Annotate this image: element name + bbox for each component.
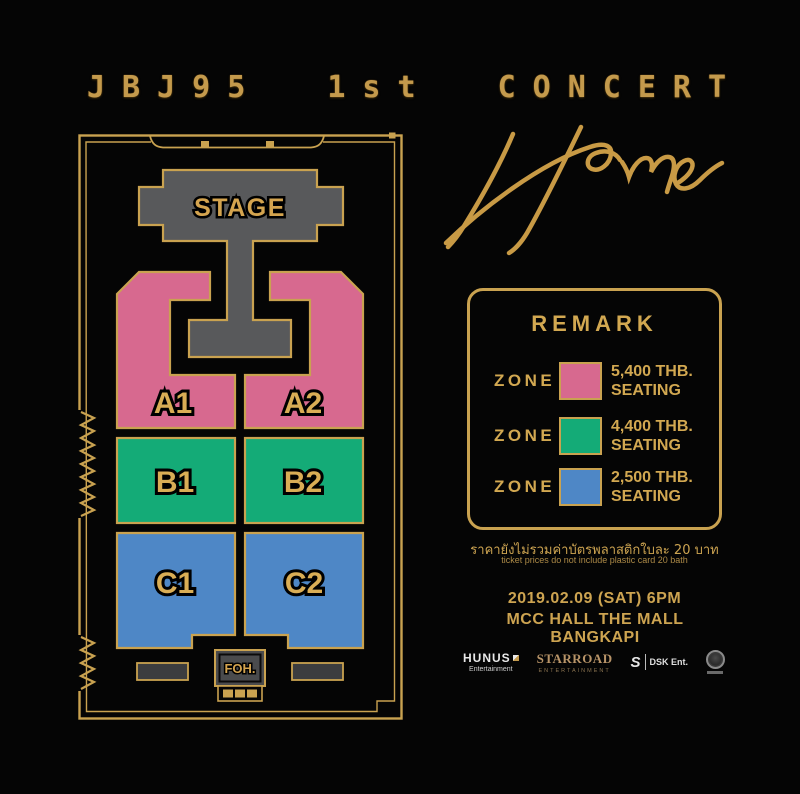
stage-label: STAGE [194, 194, 286, 222]
top-tick [201, 141, 209, 148]
zone-word: ZONE [494, 426, 555, 446]
hunus-logo-mark-icon [513, 655, 519, 661]
event-datetime: 2019.02.09 (SAT) 6PM [467, 590, 722, 608]
zone-word: ZONE [494, 477, 555, 497]
foh-console-cell [223, 690, 233, 698]
concert-title: JBJ95 1st CONCERT [30, 70, 800, 105]
zone-b1-label: B1 [156, 466, 194, 499]
seating-type: SEATING [611, 382, 681, 399]
remark-row-green: ZONE 4,400 THB. SEATING [470, 417, 719, 455]
starroad-logo-text: STARROAD [537, 651, 613, 667]
concert-poster: JBJ95 1st CONCERT STAGE A1 A2 [0, 0, 800, 794]
foh-label: FOH. [224, 661, 255, 676]
price-block: 5,400 THB. SEATING [611, 362, 693, 400]
zone-c2-label: C2 [285, 567, 323, 600]
top-tick [389, 133, 396, 139]
sponsor-starroad: STARROAD ENTERTAINMENT [537, 651, 613, 674]
hunus-logo-text: HUNUS [463, 651, 511, 665]
dsk-s-glyph: S [631, 654, 641, 671]
dsk-divider [645, 654, 646, 670]
left-equipment-bar [137, 663, 188, 680]
zone-a1-label: A1 [154, 387, 192, 420]
seating-type: SEATING [611, 437, 681, 454]
price: 4,400 THB. [611, 418, 693, 435]
right-equipment-bar [292, 663, 343, 680]
emblem-caption-bar [707, 671, 723, 674]
zone-c1-label: C1 [156, 567, 194, 600]
round-seal-icon [706, 650, 725, 669]
foh-console-cell [235, 690, 245, 698]
tray-gap [151, 139, 323, 145]
sponsor-round-emblem [706, 650, 725, 674]
event-venue: MCC HALL THE MALL BANGKAPI [460, 611, 730, 647]
remark-title: REMARK [470, 311, 719, 337]
remark-row-blue: ZONE 2,500 THB. SEATING [470, 468, 719, 506]
starroad-subtitle: ENTERTAINMENT [538, 668, 610, 674]
sponsor-logos: HUNUS Entertainment STARROAD ENTERTAINME… [463, 648, 725, 676]
seating-type: SEATING [611, 488, 681, 505]
remark-row-pink: ZONE 5,400 THB. SEATING [470, 362, 719, 400]
remark-panel: REMARK ZONE 5,400 THB. SEATING ZONE 4,40… [467, 288, 722, 530]
price-block: 4,400 THB. SEATING [611, 417, 693, 455]
top-tick [266, 141, 274, 148]
pink-zone-swatch [559, 362, 602, 400]
zone-b2-label: B2 [284, 466, 322, 499]
hunus-logo: HUNUS [463, 651, 519, 665]
home-script-logo [440, 120, 740, 260]
ticket-note-english: ticket prices do not include plastic car… [467, 555, 722, 565]
sponsor-hunus: HUNUS Entertainment [463, 651, 519, 673]
hunus-subtitle: Entertainment [469, 666, 513, 673]
zone-a2-label: A2 [284, 387, 322, 420]
zone-word: ZONE [494, 371, 555, 391]
sponsor-dsk: S DSK Ent. [631, 654, 689, 671]
green-zone-swatch [559, 417, 602, 455]
price: 5,400 THB. [611, 363, 693, 380]
price: 2,500 THB. [611, 469, 693, 486]
price-block: 2,500 THB. SEATING [611, 468, 693, 506]
foh-console-cell [247, 690, 257, 698]
blue-zone-swatch [559, 468, 602, 506]
seating-map: STAGE A1 A2 B1 B2 C1 C2 FOH. [60, 125, 420, 735]
dsk-logo-text: DSK Ent. [650, 657, 689, 667]
